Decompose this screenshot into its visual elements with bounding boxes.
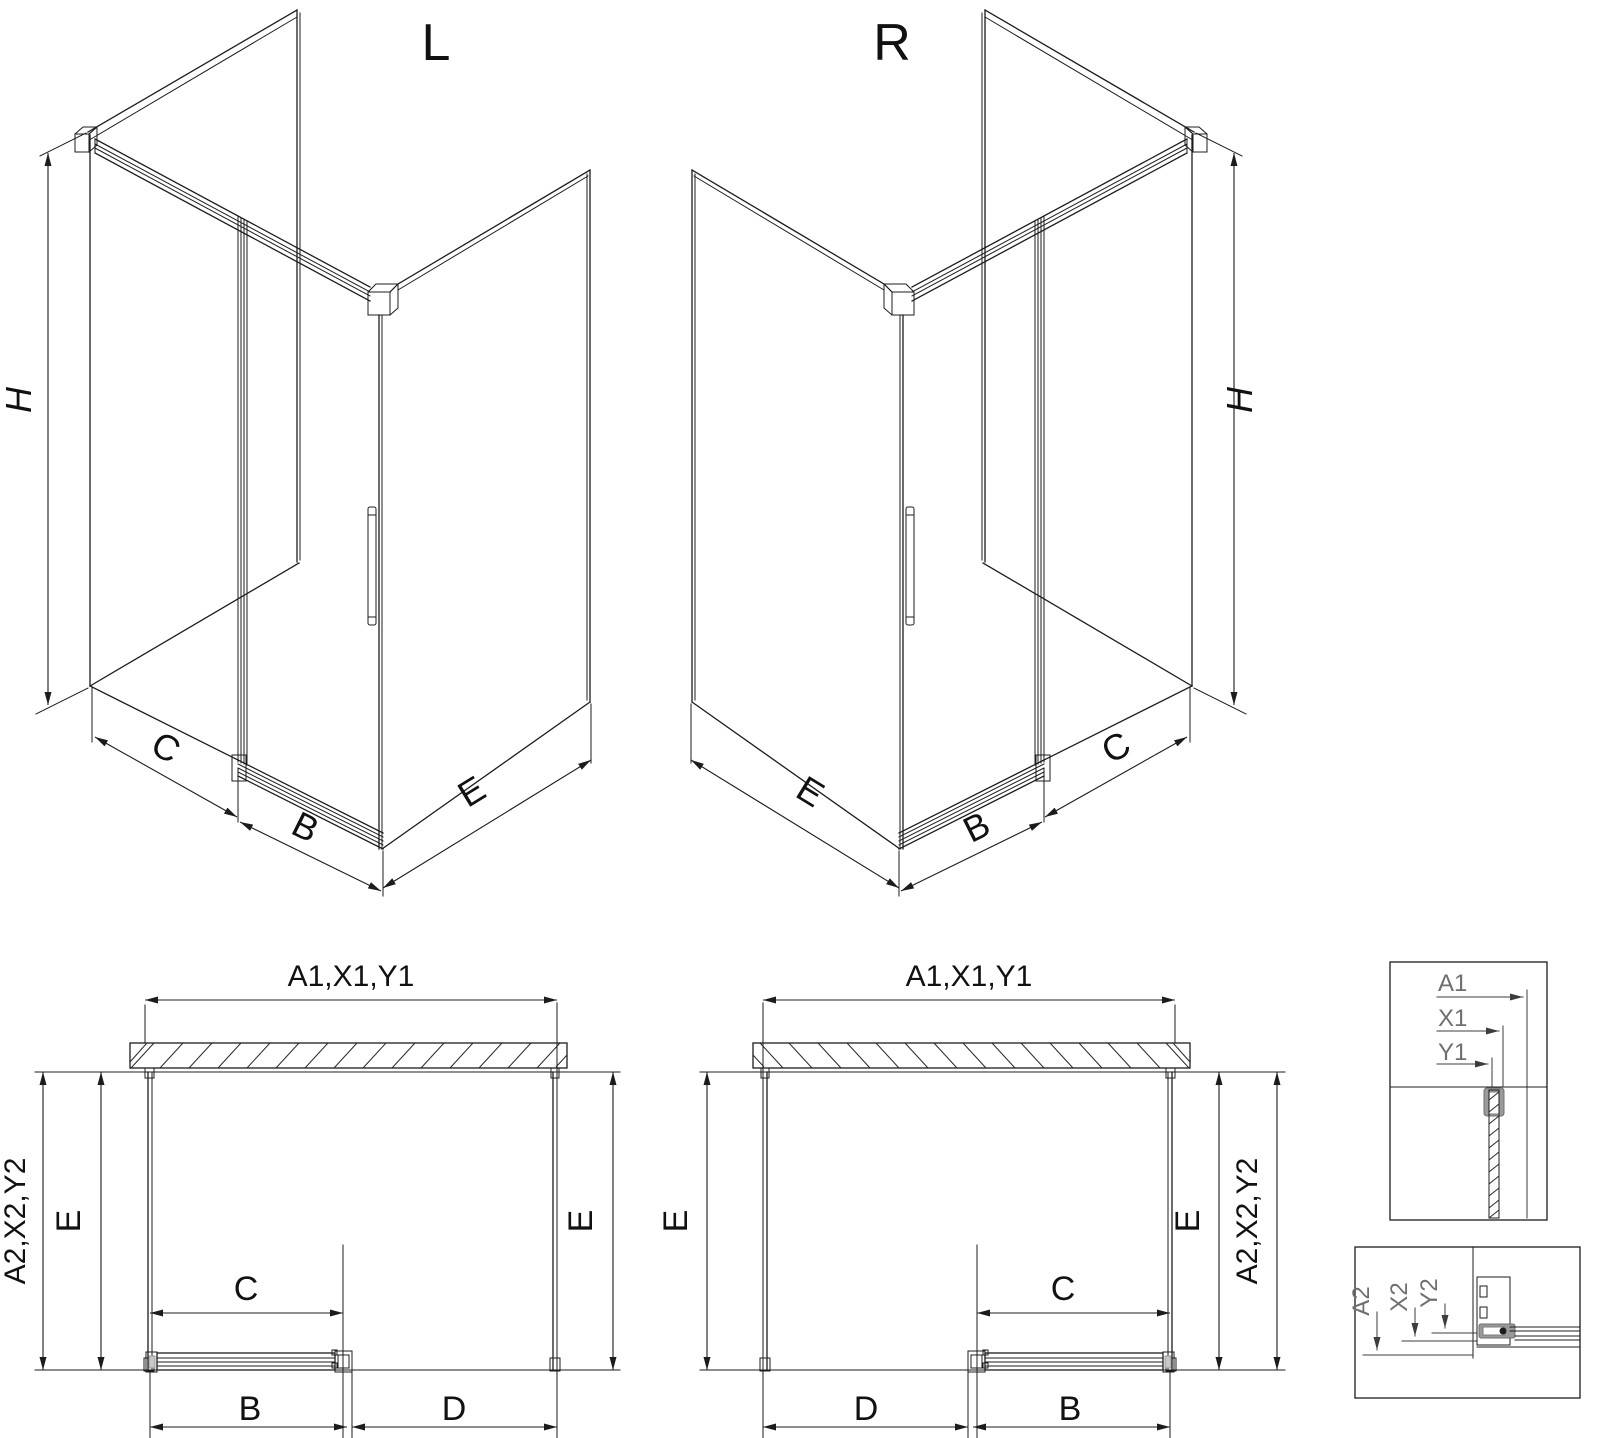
detail-bottom-label-y2: Y2: [1416, 1278, 1443, 1307]
plan-view-right: A1,X1,Y1 A2,X2,Y2 E E C B D: [657, 960, 1285, 1438]
plan-right-label-e2: E: [1169, 1210, 1207, 1233]
drawing-canvas: L H C B E R H C B E A1,X1,Y1 A2,X2,Y2 E …: [0, 0, 1600, 1438]
iso-right-dim-label-h: H: [1219, 386, 1260, 413]
iso-left-dim-label-h: H: [0, 386, 39, 413]
plan-right-label-b: B: [1059, 1390, 1082, 1428]
detail-top-label-y1: Y1: [1438, 1039, 1467, 1066]
wall-clamp-profile: [1484, 1088, 1504, 1116]
plan-left-label-e2: E: [562, 1210, 600, 1233]
plan-right-label-top: A1,X1,Y1: [906, 960, 1033, 993]
plan-right-label-c: C: [1051, 1270, 1076, 1308]
floor-profile-block: [1477, 1277, 1515, 1345]
plan-right-label-d: D: [854, 1390, 879, 1428]
iso-left-dim-label-b: B: [286, 803, 326, 850]
iso-left-dim-label-c: C: [145, 723, 188, 771]
plan-right-label-e1: E: [657, 1210, 695, 1233]
detail-top-label-a1: A1: [1438, 970, 1467, 997]
plan-left-label-d: D: [442, 1390, 467, 1428]
plan-left-label-c: C: [234, 1270, 259, 1308]
plan-right-label-side: A2,X2,Y2: [1231, 1158, 1264, 1285]
iso-right-dim-label-c: C: [1094, 723, 1137, 771]
technical-drawing-page: L H C B E R H C B E A1,X1,Y1 A2,X2,Y2 E …: [0, 0, 1600, 1438]
plan-left-label-b: B: [239, 1390, 262, 1428]
plan-left-label-e1: E: [50, 1210, 88, 1233]
iso-view-right: R H C B E: [691, 10, 1260, 896]
view-title-left: L: [422, 14, 451, 72]
iso-right-dim-label-b: B: [957, 803, 997, 850]
view-title-right: R: [873, 14, 911, 72]
detail-bottom-label-a2: A2: [1348, 1286, 1375, 1315]
detail-top-label-x1: X1: [1438, 1005, 1467, 1032]
plan-view-left: A1,X1,Y1 A2,X2,Y2 E E C B D: [0, 960, 620, 1438]
plan-left-label-side: A2,X2,Y2: [0, 1158, 32, 1285]
plan-left-label-top: A1,X1,Y1: [288, 960, 415, 993]
iso-view-left: L H C B E: [0, 10, 591, 896]
detail-bottom-label-x2: X2: [1386, 1282, 1413, 1311]
detail-view-top: A1 X1 Y1: [1390, 962, 1547, 1220]
screw-icon: [1500, 1328, 1507, 1335]
detail-view-bottom: A2 X2 Y2: [1348, 1247, 1580, 1398]
